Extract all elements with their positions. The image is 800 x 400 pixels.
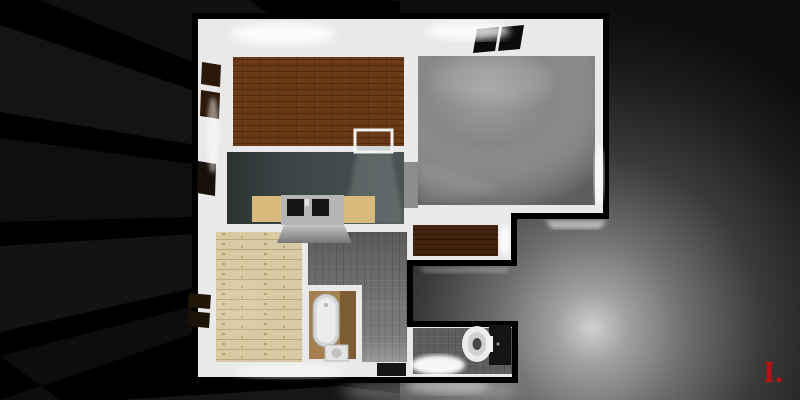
entry-doormat [377, 363, 406, 376]
toilet-tank [486, 336, 493, 352]
room-nook-wood [413, 225, 498, 256]
toilet-flush-button [496, 342, 499, 345]
room-wc [411, 325, 512, 375]
ground-highlight-nook [420, 267, 510, 273]
counter-front-face [277, 225, 352, 243]
window-bedroom-1 [188, 293, 211, 309]
bathtub-drain [324, 303, 328, 307]
bathroom-sink [325, 345, 348, 361]
sink-basin [332, 348, 342, 358]
ground-highlight-right [545, 220, 607, 229]
left-wall-bloom [207, 97, 219, 173]
bottom-wall-bloom [235, 364, 345, 378]
right-wall-bloom [594, 145, 604, 205]
bathtub [313, 294, 339, 347]
sink-basin-right [312, 199, 329, 216]
faucet [305, 199, 309, 206]
kitchen-living-doorway [404, 162, 418, 208]
skylight-glow [433, 58, 557, 102]
floorplan-3d-render: I. [0, 0, 800, 400]
room-bedroom [210, 232, 302, 362]
window-upper-1 [201, 62, 221, 87]
watermark-logo: I. [763, 354, 783, 389]
room-bathroom [303, 285, 362, 365]
room-living [418, 56, 595, 208]
nook-plank-texture [413, 225, 498, 256]
toilet-bowl-hole [473, 338, 482, 350]
wc-entry-light-pool [411, 355, 465, 375]
window-light-patch [210, 277, 270, 333]
counter-wood-right [344, 196, 375, 223]
room-top-left-wood [233, 57, 404, 146]
nook-wall-bloom [500, 225, 510, 255]
render-viewport: I. [0, 0, 800, 400]
top-wall-bloom-left [231, 23, 335, 45]
sink-basin-left [287, 199, 304, 216]
window-bedroom-2 [187, 311, 210, 328]
top-wall-bloom-right [426, 22, 510, 40]
counter-wood-left [252, 196, 281, 222]
brown-room-brick-texture [233, 57, 404, 146]
